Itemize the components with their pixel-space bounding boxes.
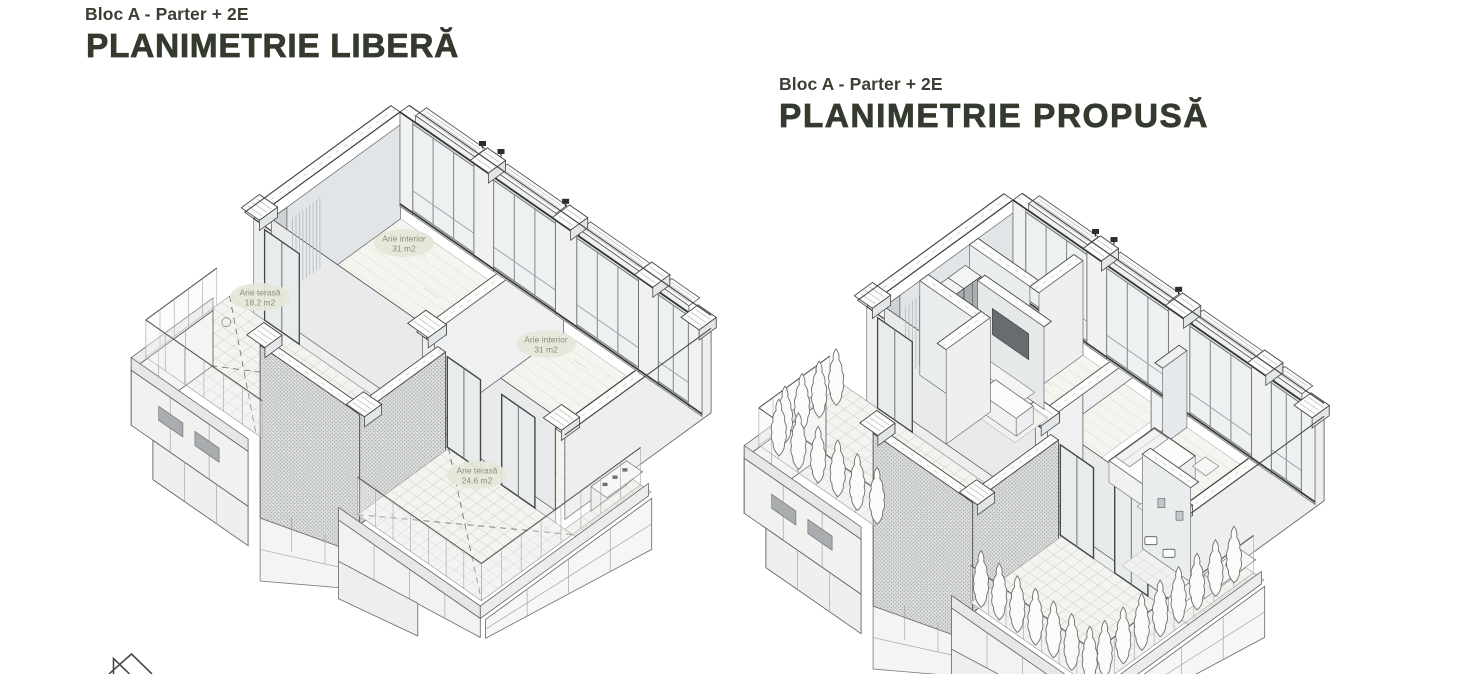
svg-text:Arie terasă: Arie terasă (239, 288, 280, 298)
svg-text:31 m2: 31 m2 (534, 345, 558, 355)
svg-text:Arie interior: Arie interior (382, 234, 426, 244)
svg-text:24.6 m2: 24.6 m2 (462, 476, 493, 486)
svg-text:31 m2: 31 m2 (392, 244, 416, 254)
svg-text:Arie terasă: Arie terasă (456, 466, 497, 476)
svg-text:18.2 m2: 18.2 m2 (245, 298, 276, 308)
svg-text:Arie interior: Arie interior (524, 335, 568, 345)
